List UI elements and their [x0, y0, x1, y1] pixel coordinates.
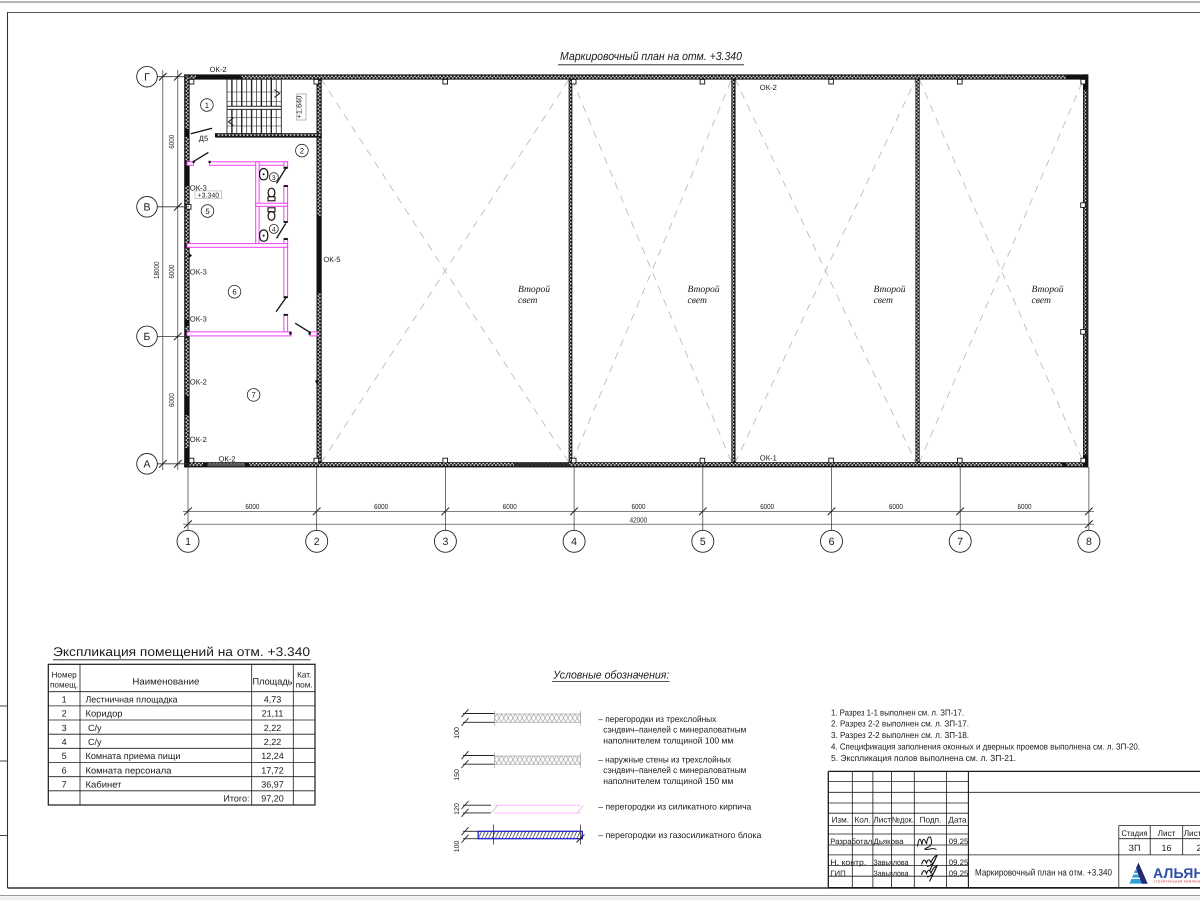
svg-text:36,97: 36,97	[261, 780, 284, 790]
svg-text:Изм.: Изм.	[832, 816, 850, 825]
svg-text:5: 5	[62, 751, 67, 761]
svg-text:2,22: 2,22	[264, 737, 282, 747]
svg-text:ГИП: ГИП	[830, 869, 845, 878]
svg-text:Комната приема пищи: Комната приема пищи	[86, 751, 181, 761]
svg-text:2. Разрез 2-2 выполнен см. л.: 2. Разрез 2-2 выполнен см. л. ЗП-17.	[831, 719, 969, 729]
svg-text:Наименование: Наименование	[132, 677, 199, 687]
svg-text:С/у: С/у	[88, 723, 102, 733]
svg-text:6000: 6000	[503, 502, 517, 511]
svg-text:6000: 6000	[167, 393, 176, 407]
svg-text:свет: свет	[518, 295, 538, 306]
svg-text:6: 6	[829, 536, 835, 548]
svg-text:97,20: 97,20	[261, 794, 284, 804]
svg-text:Подп.: Подп.	[920, 816, 942, 825]
svg-text:Маркировочный план на отм. +3.: Маркировочный план на отм. +3.340	[975, 867, 1112, 877]
svg-text:12,24: 12,24	[261, 751, 284, 761]
svg-text:свет: свет	[874, 295, 894, 306]
svg-text:– перегородки из силикатного к: – перегородки из силикатного кирпича	[598, 802, 751, 812]
svg-text:наполнителем толщиной 100 мм: наполнителем толщиной 100 мм	[603, 736, 733, 746]
svg-text:Второй: Второй	[518, 284, 550, 295]
svg-text:09.25: 09.25	[949, 837, 969, 846]
svg-text:6000: 6000	[374, 502, 388, 511]
svg-text:4: 4	[272, 227, 276, 234]
svg-text:наполнителем толщиной 150 мм: наполнителем толщиной 150 мм	[603, 776, 733, 786]
svg-text:2: 2	[300, 146, 304, 155]
svg-text:09.25: 09.25	[949, 869, 969, 878]
svg-text:5: 5	[205, 207, 210, 216]
svg-text:Н. контр.: Н. контр.	[830, 858, 866, 867]
svg-text:Лист: Лист	[873, 816, 891, 825]
svg-text:сэндвич–панелей с минераловатн: сэндвич–панелей с минераловатным	[603, 765, 746, 775]
svg-text:1: 1	[62, 695, 67, 705]
svg-text:150: 150	[454, 769, 461, 781]
svg-text:Маркировочный план на отм. +3.: Маркировочный план на отм. +3.340	[560, 50, 742, 63]
svg-text:№док.: №док.	[892, 816, 914, 825]
svg-text:Кол.: Кол.	[854, 816, 870, 825]
svg-text:42000: 42000	[630, 515, 648, 524]
svg-text:Дата: Дата	[948, 816, 967, 825]
svg-text:6000: 6000	[632, 502, 646, 511]
svg-text:Комната персонала: Комната персонала	[86, 765, 172, 775]
svg-text:1: 1	[185, 536, 191, 548]
svg-text:4,73: 4,73	[264, 695, 282, 705]
svg-text:4: 4	[571, 536, 577, 548]
svg-text:Завьялова: Завьялова	[874, 858, 910, 867]
svg-text:2: 2	[62, 709, 67, 719]
svg-text:7: 7	[62, 780, 67, 790]
svg-text:120: 120	[454, 803, 461, 815]
svg-text:сэндвич–панелей с минераловатн: сэндвич–панелей с минераловатным	[603, 725, 746, 735]
svg-text:7: 7	[957, 536, 963, 548]
svg-text:Экспликация помещений на отм.: Экспликация помещений на отм. +3.340	[53, 645, 310, 659]
svg-text:5. Экспликация полов выполнена: 5. Экспликация полов выполнена см. л. ЗП…	[831, 753, 1016, 763]
svg-text:09.25: 09.25	[949, 858, 969, 867]
svg-text:2,22: 2,22	[264, 723, 282, 733]
svg-text:Дьякова: Дьякова	[874, 837, 905, 846]
svg-text:Листов: Листов	[1184, 829, 1200, 838]
svg-text:4. Спецификация заполнения око: 4. Спецификация заполнения оконных и две…	[831, 741, 1140, 751]
svg-text:2: 2	[1196, 843, 1200, 853]
svg-text:ОК-2: ОК-2	[760, 83, 777, 92]
svg-text:Второй: Второй	[688, 284, 720, 295]
svg-text:21,11: 21,11	[262, 709, 284, 719]
svg-text:строительная компания: строительная компания	[1154, 879, 1200, 884]
svg-text:100: 100	[454, 840, 461, 852]
svg-text:ОК-2: ОК-2	[190, 378, 207, 387]
svg-text:1. Разрез 1-1 выполнен см. л.: 1. Разрез 1-1 выполнен см. л. ЗП-17.	[831, 707, 964, 717]
svg-text:Разработал: Разработал	[830, 837, 872, 846]
svg-text:3. Разрез 2-2 выполнен см. л.: 3. Разрез 2-2 выполнен см. л. ЗП-18.	[831, 730, 969, 740]
svg-text:Кабинет: Кабинет	[86, 780, 122, 790]
svg-text:помещ.: помещ.	[50, 681, 78, 690]
svg-text:1: 1	[205, 101, 209, 110]
svg-text:свет: свет	[688, 295, 708, 306]
svg-text:ОК-3: ОК-3	[190, 267, 207, 276]
svg-text:Итого:: Итого:	[223, 794, 249, 804]
svg-text:Кат.: Кат.	[297, 671, 311, 680]
svg-text:6000: 6000	[167, 265, 176, 279]
svg-text:7: 7	[251, 391, 255, 400]
svg-text:16: 16	[1161, 843, 1171, 853]
svg-text:ОК-2: ОК-2	[210, 65, 227, 74]
svg-text:пом.: пом.	[296, 681, 313, 690]
svg-text:6000: 6000	[245, 502, 259, 511]
svg-text:Номер: Номер	[51, 671, 77, 680]
svg-text:Условные обозначения:: Условные обозначения:	[552, 670, 669, 682]
svg-text:Второй: Второй	[1032, 284, 1064, 295]
svg-text:ЗП: ЗП	[1129, 843, 1141, 853]
svg-text:ОК-3: ОК-3	[190, 314, 207, 323]
svg-text:Б: Б	[144, 331, 151, 343]
svg-text:ОК-5: ОК-5	[323, 255, 340, 264]
svg-text:3: 3	[272, 175, 276, 182]
svg-text:В: В	[143, 202, 150, 214]
svg-text:+3.340: +3.340	[198, 192, 220, 199]
svg-text:– наружные стены из трехслойны: – наружные стены из трехслойных	[598, 754, 732, 764]
svg-text:Г: Г	[144, 72, 150, 84]
svg-text:Лестничная площадка: Лестничная площадка	[86, 695, 178, 705]
svg-text:18000: 18000	[152, 261, 161, 279]
svg-text:Площадь: Площадь	[253, 677, 293, 687]
svg-text:3: 3	[62, 723, 67, 733]
svg-text:С/у: С/у	[88, 737, 102, 747]
svg-text:6: 6	[232, 288, 236, 297]
svg-text:Завьялова: Завьялова	[874, 869, 910, 878]
svg-text:6000: 6000	[889, 502, 903, 511]
svg-text:6: 6	[62, 765, 67, 775]
svg-text:6000: 6000	[1018, 502, 1032, 511]
svg-text:8: 8	[1086, 536, 1092, 548]
svg-text:6000: 6000	[167, 135, 176, 149]
svg-text:6000: 6000	[760, 502, 774, 511]
svg-text:ОК-2: ОК-2	[219, 454, 236, 463]
svg-text:Второй: Второй	[874, 284, 906, 295]
svg-text:ОК-1: ОК-1	[760, 453, 777, 462]
svg-text:Д5: Д5	[199, 134, 208, 143]
svg-text:2: 2	[314, 536, 320, 548]
svg-text:свет: свет	[1032, 295, 1052, 306]
svg-text:5: 5	[700, 536, 706, 548]
svg-text:+1.640: +1.640	[294, 96, 303, 119]
svg-text:А: А	[143, 459, 150, 471]
svg-text:ОК-2: ОК-2	[190, 435, 207, 444]
svg-text:4: 4	[62, 737, 67, 747]
svg-text:– перегородки из трехслойных: – перегородки из трехслойных	[598, 714, 717, 724]
svg-text:Коридор: Коридор	[86, 709, 123, 719]
svg-text:3: 3	[442, 536, 448, 548]
svg-text:Лист: Лист	[1158, 829, 1176, 838]
svg-text:17,72: 17,72	[261, 765, 284, 775]
svg-text:– перегородки из газосиликатно: – перегородки из газосиликатного блока	[598, 830, 761, 840]
svg-text:100: 100	[454, 727, 461, 739]
svg-text:Стадия: Стадия	[1122, 829, 1148, 838]
